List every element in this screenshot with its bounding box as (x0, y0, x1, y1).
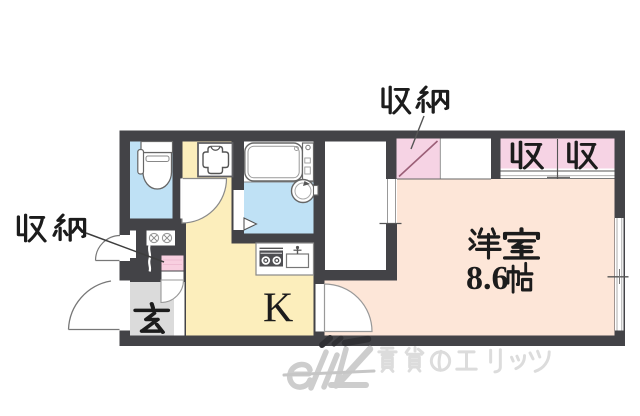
svg-text:8.6: 8.6 (466, 260, 509, 297)
svg-text:K: K (263, 286, 293, 332)
